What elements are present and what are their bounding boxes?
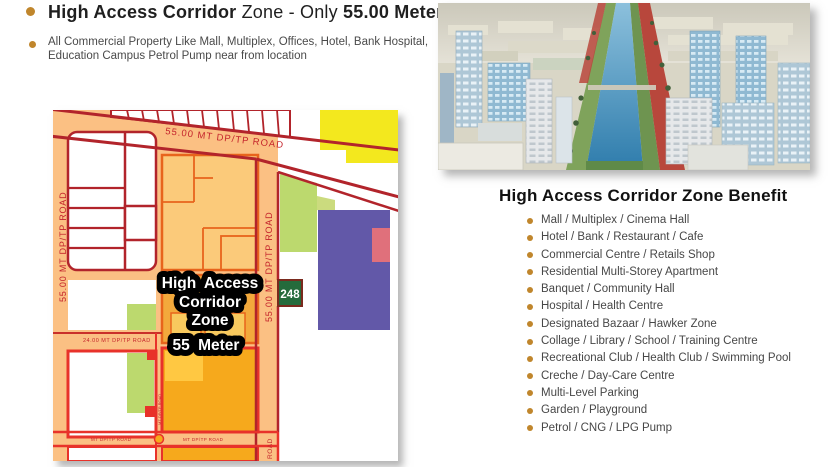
gold-bullet-icon: [26, 7, 35, 16]
gold-bullet-icon: [527, 304, 533, 310]
benefit-item-label: Residential Multi-Storey Apartment: [541, 266, 718, 279]
benefit-item-label: Commercial Centre / Retails Shop: [541, 249, 715, 262]
benefit-item: Petrol / CNG / LPG Pump: [527, 422, 791, 435]
benefit-item-label: Multi-Level Parking: [541, 387, 639, 400]
road-label-vert-tail: ROAD: [267, 438, 274, 459]
gold-bullet-icon: [527, 269, 533, 275]
gold-bullet-icon: [527, 425, 533, 431]
gold-bullet-icon: [527, 408, 533, 414]
benefit-item: Hospital / Health Centre: [527, 300, 791, 313]
gold-bullet-icon: [527, 390, 533, 396]
benefit-item: Garden / Playground: [527, 404, 791, 417]
benefit-item: Hotel / Bank / Restaurant / Cafe: [527, 231, 791, 244]
zone-label-line3: Zone: [191, 312, 228, 329]
benefit-item-label: Hotel / Bank / Restaurant / Cafe: [541, 231, 703, 244]
gold-bullet-icon: [527, 321, 533, 327]
intro-description: All Commercial Property Like Mall, Multi…: [48, 35, 428, 63]
road-label-center: 55.00 MT DP/TP ROAD: [264, 212, 274, 322]
gold-bullet-icon: [527, 252, 533, 258]
map-left-parcels: [68, 132, 156, 330]
benefits-list: Mall / Multiplex / Cinema Hall Hotel / B…: [527, 214, 791, 439]
benefit-item-label: Garden / Playground: [541, 404, 647, 417]
benefit-item-label: Creche / Day-Care Centre: [541, 370, 675, 383]
zoning-map-svg: 55.00 MT DP/TP ROAD 55.00 MT DP/TP ROAD …: [53, 110, 398, 461]
benefit-item: Multi-Level Parking: [527, 387, 791, 400]
route-sign-number: 248: [280, 289, 300, 301]
benefit-item-label: Collage / Library / School / Training Ce…: [541, 335, 758, 348]
road-label-left: 55.00 MT DP/TP ROAD: [58, 192, 68, 302]
benefit-item-label: Hospital / Health Centre: [541, 300, 663, 313]
description-line-1: All Commercial Property Like Mall, Multi…: [48, 36, 428, 48]
zone-label-line1: High Access: [162, 275, 258, 292]
zoning-map: 55.00 MT DP/TP ROAD 55.00 MT DP/TP ROAD …: [53, 110, 398, 461]
city-render-svg: [438, 3, 810, 170]
benefit-item: Mall / Multiplex / Cinema Hall: [527, 214, 791, 227]
benefit-item: Creche / Day-Care Centre: [527, 370, 791, 383]
benefit-item: Commercial Centre / Retails Shop: [527, 249, 791, 262]
benefit-item: Collage / Library / School / Training Ce…: [527, 335, 791, 348]
gold-bullet-icon: [29, 41, 36, 48]
page-title: High Access Corridor Zone - Only 55.00 M…: [48, 2, 443, 23]
road-label-cross: 24.00 MT DP/TP ROAD: [83, 338, 151, 344]
description-line-2: Education Campus Petrol Pump near from l…: [48, 50, 307, 62]
gold-bullet-icon: [527, 356, 533, 362]
title-mid: Zone - Only: [236, 2, 343, 22]
map-parcel-green: [280, 174, 317, 252]
gold-bullet-icon: [527, 287, 533, 293]
benefit-item: Banquet / Community Hall: [527, 283, 791, 296]
benefit-item: Designated Bazaar / Hawker Zone: [527, 318, 791, 331]
benefits-heading: High Access Corridor Zone Benefit: [499, 186, 787, 206]
title-bold-1: High Access Corridor: [48, 2, 236, 22]
zone-label-line2: Corridor: [179, 294, 241, 311]
map-parcel-salmon: [372, 228, 390, 262]
benefit-item-label: Mall / Multiplex / Cinema Hall: [541, 214, 689, 227]
gold-bullet-icon: [527, 235, 533, 241]
benefit-item: Recreational Club / Health Club / Swimmi…: [527, 352, 791, 365]
benefit-item: Residential Multi-Storey Apartment: [527, 266, 791, 279]
benefit-item-label: Petrol / CNG / LPG Pump: [541, 422, 672, 435]
render-lawn: [586, 161, 643, 170]
gold-bullet-icon: [527, 373, 533, 379]
route-sign-248: 248: [278, 280, 302, 306]
meter-label: 55 Meter: [173, 337, 240, 354]
benefit-item-label: Recreational Club / Health Club / Swimmi…: [541, 352, 791, 365]
gold-bullet-icon: [527, 218, 533, 224]
brochure-page: High Access Corridor Zone - Only 55.00 M…: [0, 0, 835, 467]
benefit-item-label: Banquet / Community Hall: [541, 283, 675, 296]
road-label-bottom-right: MT DP/TP ROAD: [183, 437, 224, 442]
benefit-item-label: Designated Bazaar / Hawker Zone: [541, 318, 717, 331]
road-label-gap: MT DP/TP ROAD: [157, 394, 162, 425]
road-label-bottom-left: MT DP/TP ROAD: [91, 437, 132, 442]
city-aerial-render: [438, 3, 810, 170]
title-bold-2: 55.00 Meter: [343, 2, 443, 22]
render-bridge: [588, 85, 656, 90]
gold-bullet-icon: [527, 339, 533, 345]
